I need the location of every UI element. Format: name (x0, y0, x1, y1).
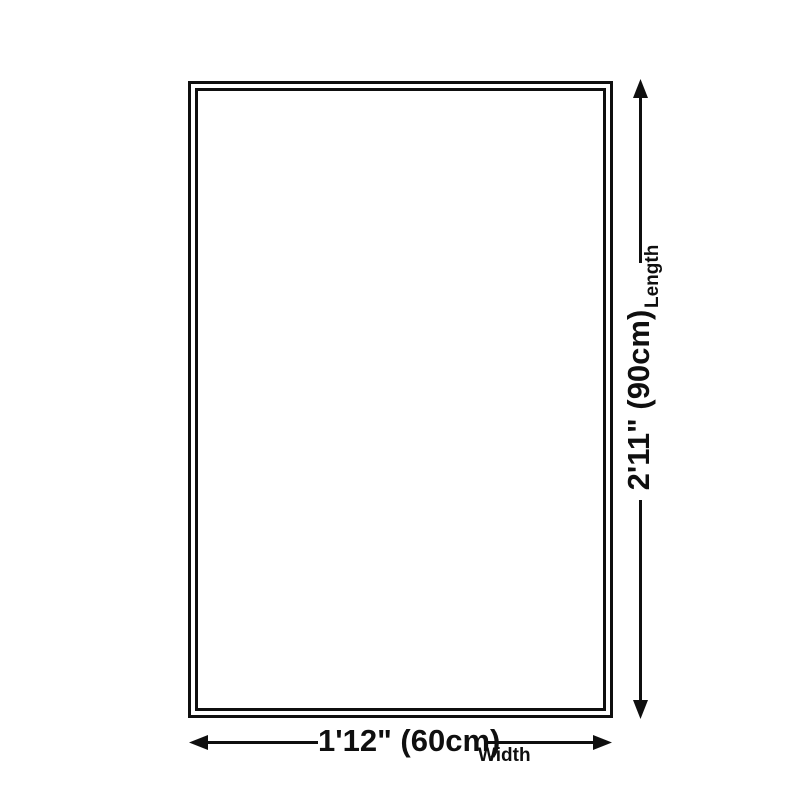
dimension-diagram: 2'11" (90cm) Length 1'12" (60cm) Width (0, 0, 800, 800)
length-arrow-head-bottom-icon (633, 700, 648, 719)
width-arrow-head-left-icon (189, 735, 208, 750)
width-value-label: 1'12" (60cm) (318, 725, 482, 757)
length-value-label: 2'11" (90cm) (623, 300, 655, 500)
width-arrow-head-right-icon (593, 735, 612, 750)
length-axis-label: Length (643, 248, 663, 308)
length-arrow-head-top-icon (633, 79, 648, 98)
width-axis-label: Width (478, 746, 530, 766)
dimension-arrows (0, 0, 800, 800)
